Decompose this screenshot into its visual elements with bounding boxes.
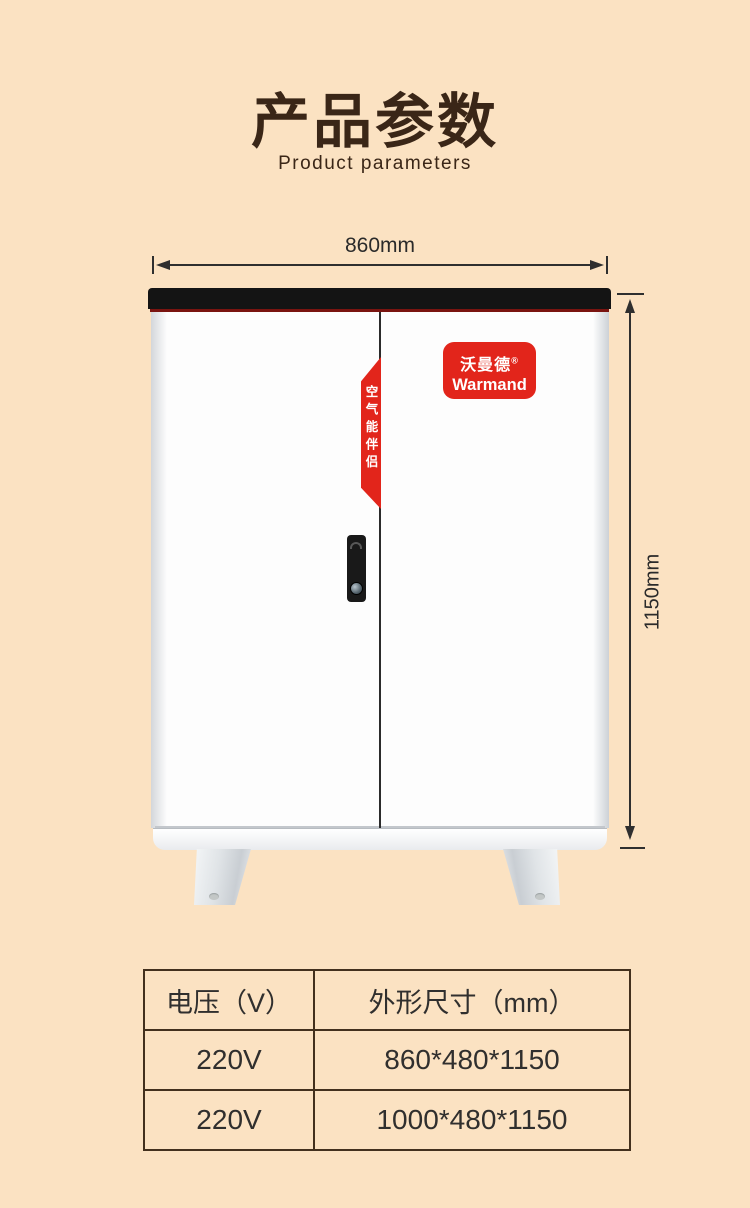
table-header-row: 电压（V） 外形尺寸（mm） xyxy=(144,970,630,1030)
dimension-tick-left xyxy=(152,256,154,274)
brand-name-en: Warmand xyxy=(443,376,536,395)
cabinet-left-edge-shade xyxy=(151,312,167,828)
cabinet-base xyxy=(153,828,607,850)
ribbon-banner: 空气能伴侣 xyxy=(361,357,381,509)
dimensions-cell: 1000*480*1150 xyxy=(314,1090,630,1150)
foot-hole-icon xyxy=(209,893,219,900)
arrow-up-icon xyxy=(625,299,635,313)
table-row: 220V 1000*480*1150 xyxy=(144,1090,630,1150)
dimension-tick-top xyxy=(617,293,644,295)
table-header-voltage: 电压（V） xyxy=(144,970,314,1030)
voltage-cell: 220V xyxy=(144,1030,314,1090)
foot-hole-icon xyxy=(535,893,545,900)
arrow-left-icon xyxy=(156,260,170,270)
handle-recess-icon xyxy=(350,542,362,549)
height-dimension-label: 1150mm xyxy=(642,554,665,630)
width-dimension-label: 860mm xyxy=(240,234,520,258)
registered-mark: ® xyxy=(511,356,519,366)
dimension-tick-bottom xyxy=(620,847,645,849)
table-header-dimensions: 外形尺寸（mm） xyxy=(314,970,630,1030)
page-title: 产品参数 xyxy=(0,74,750,159)
brand-badge: 沃曼德® Warmand xyxy=(443,342,536,399)
arrow-right-icon xyxy=(590,260,604,270)
cabinet-foot-right xyxy=(503,849,560,905)
height-dimension-line xyxy=(629,302,631,836)
width-dimension-line xyxy=(162,264,598,266)
spec-table: 电压（V） 外形尺寸（mm） 220V 860*480*1150 220V 10… xyxy=(143,969,631,1151)
door-handle xyxy=(347,535,366,602)
page-subtitle: Product parameters xyxy=(0,153,750,175)
cabinet-top-panel xyxy=(148,288,611,309)
page-background: { "header": { "title": "产品参数", "subtitle… xyxy=(0,0,750,1208)
dimensions-cell: 860*480*1150 xyxy=(314,1030,630,1090)
lock-icon xyxy=(350,582,363,595)
voltage-cell: 220V xyxy=(144,1090,314,1150)
dimension-tick-right xyxy=(606,256,608,274)
arrow-down-icon xyxy=(625,826,635,840)
table-row: 220V 860*480*1150 xyxy=(144,1030,630,1090)
cabinet-foot-left xyxy=(194,849,251,905)
cabinet-right-edge-shade xyxy=(593,312,609,828)
brand-name-cn: 沃曼德® xyxy=(443,351,536,375)
ribbon-text: 空气能伴侣 xyxy=(362,385,381,473)
